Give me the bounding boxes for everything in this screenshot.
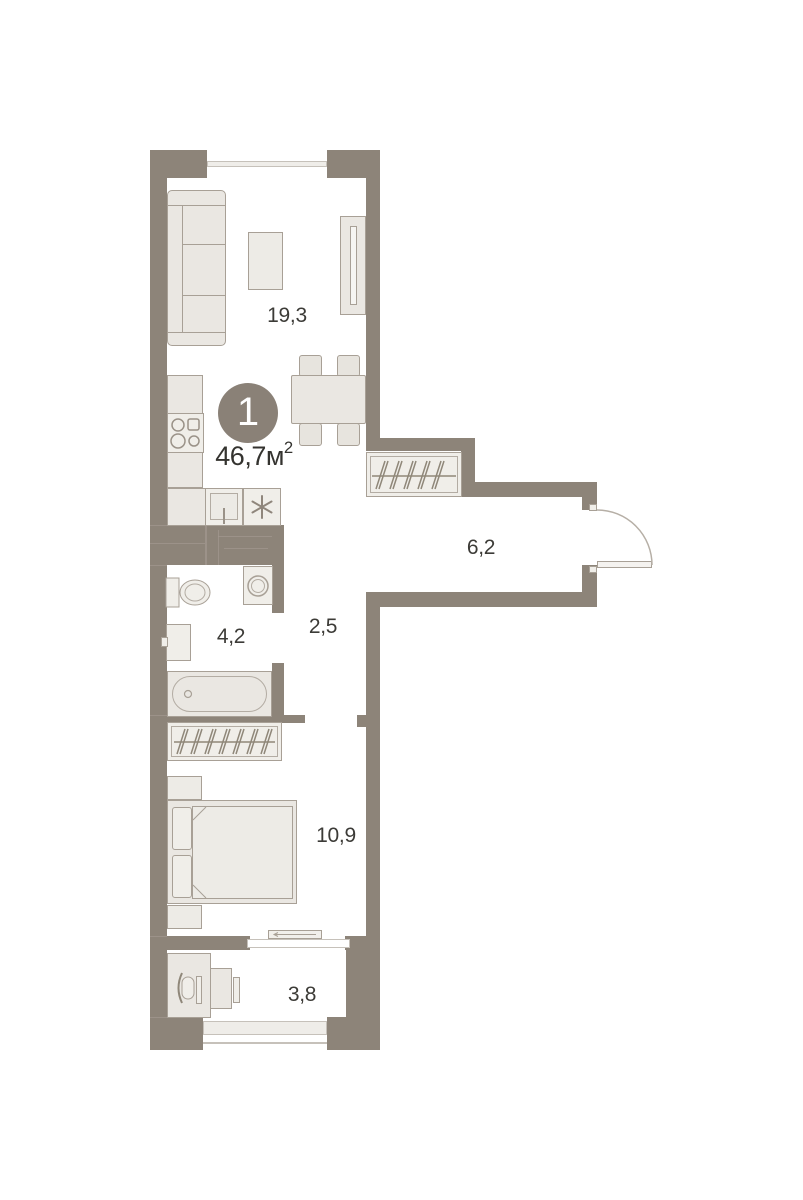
living-room-window-glazing (207, 161, 327, 167)
balcony-cabinet (210, 968, 232, 1009)
balcony-window-glazing (203, 1021, 327, 1035)
wall-balcony-right (346, 938, 380, 1020)
total-area-label: 46,7м2 (215, 440, 292, 472)
dining-chair (299, 355, 322, 377)
bathroom-sink (166, 624, 191, 661)
wall-bedroom-door-tick (357, 715, 366, 727)
room-label-bathroom: 4,2 (217, 625, 245, 649)
washing-machine-drum-icon (243, 566, 273, 605)
kitchen-counter-corner (167, 488, 206, 526)
wall-hallway-top (461, 482, 597, 497)
kitchen-sink-tap (223, 508, 225, 524)
room-label-living-kitchen: 19,3 (267, 304, 307, 328)
blanket-fold-icon (192, 806, 212, 899)
balcony-door-arrow-icon (272, 932, 318, 937)
apartment-number: 1 (237, 390, 259, 434)
room-label-hallway: 6,2 (467, 536, 495, 560)
floorplan: 1 46,7м2 19,3 6,2 2,5 4,2 10,9 3,8 (0, 0, 803, 1200)
sofa (167, 190, 226, 346)
coffee-table (248, 232, 283, 290)
wall-hallway-bottom (366, 592, 597, 607)
entrance-door-swing-arc (590, 503, 660, 573)
wall-bathroom-right-upper (272, 525, 284, 613)
monitor (196, 976, 202, 1004)
room-label-corridor: 2,5 (309, 615, 337, 639)
tv-screen (350, 226, 357, 305)
room-label-balcony: 3,8 (288, 983, 316, 1007)
bedroom-wardrobe-hangers-icon (167, 722, 282, 761)
pillow (172, 807, 192, 850)
wall-bedroom-bottom-left (150, 936, 250, 950)
wall-balcony-bottom-right (327, 1017, 380, 1050)
entrance-door-jamb-mark-bottom (589, 566, 597, 573)
nightstand (167, 776, 202, 800)
dining-table (291, 375, 366, 424)
entrance-door-jamb-mark-top (589, 504, 597, 511)
wall-balcony-bottom-left (150, 1017, 203, 1050)
wall-right-middle (366, 592, 380, 948)
vent-shaft-block (150, 525, 284, 565)
balcony-door-sill (247, 939, 350, 948)
wall-right-upper (366, 150, 380, 443)
stove-burners-icon (167, 413, 204, 453)
pillow (172, 855, 192, 898)
dining-chair (337, 355, 360, 377)
bed (167, 800, 297, 904)
dishwasher-asterisk-icon (243, 488, 281, 526)
wall-closet-niche-top (366, 438, 475, 451)
nightstand (167, 905, 202, 929)
dining-chair (299, 423, 322, 446)
apartment-number-badge: 1 (218, 383, 278, 443)
room-label-bedroom: 10,9 (316, 824, 356, 848)
balcony-window-line (203, 1042, 327, 1044)
balcony-chair-back (233, 977, 240, 1003)
dining-chair (337, 423, 360, 446)
bathroom-sink-tap (161, 637, 168, 647)
hallway-wardrobe-hangers-icon (366, 452, 462, 497)
wall-bathroom-right-lower (272, 663, 284, 717)
toilet (164, 576, 214, 610)
bathtub-drain-icon (183, 689, 193, 699)
